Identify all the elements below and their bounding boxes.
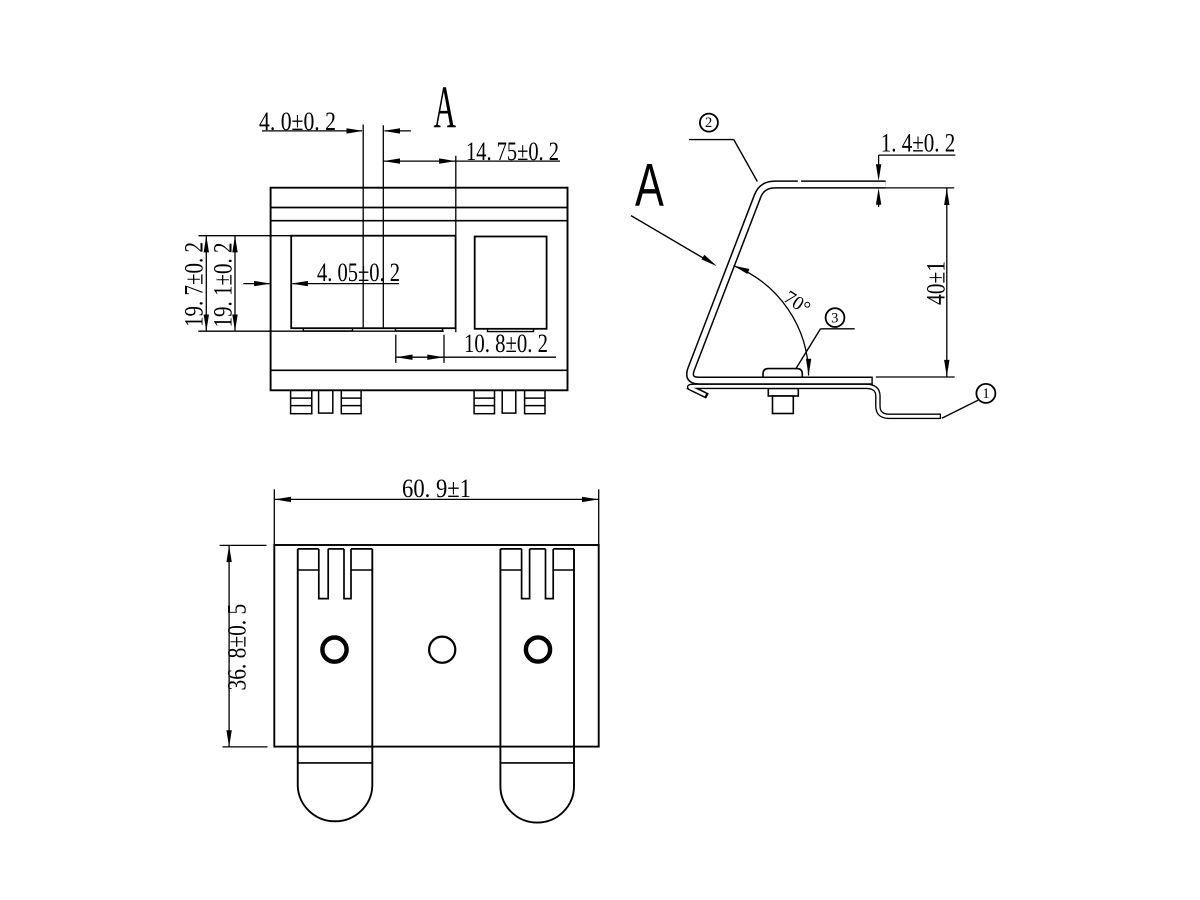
svg-text:60. 9±1: 60. 9±1 [402, 474, 471, 503]
svg-text:14. 75±0. 2: 14. 75±0. 2 [466, 137, 559, 166]
svg-text:4. 05±0. 2: 4. 05±0. 2 [317, 258, 400, 287]
svg-text:4. 0±0. 2: 4. 0±0. 2 [259, 107, 336, 136]
svg-text:2: 2 [705, 115, 712, 131]
svg-text:40±1: 40±1 [922, 261, 951, 305]
svg-text:A: A [635, 153, 664, 220]
svg-text:19. 1±0. 2: 19. 1±0. 2 [209, 243, 238, 328]
svg-text:3: 3 [831, 310, 838, 326]
svg-text:10. 8±0. 2: 10. 8±0. 2 [464, 329, 548, 358]
svg-text:36. 8±0. 5: 36. 8±0. 5 [223, 604, 252, 691]
svg-text:A: A [434, 75, 457, 141]
svg-text:1: 1 [982, 386, 989, 402]
svg-text:19. 7±0. 2: 19. 7±0. 2 [180, 242, 209, 327]
svg-text:1. 4±0. 2: 1. 4±0. 2 [881, 128, 956, 157]
